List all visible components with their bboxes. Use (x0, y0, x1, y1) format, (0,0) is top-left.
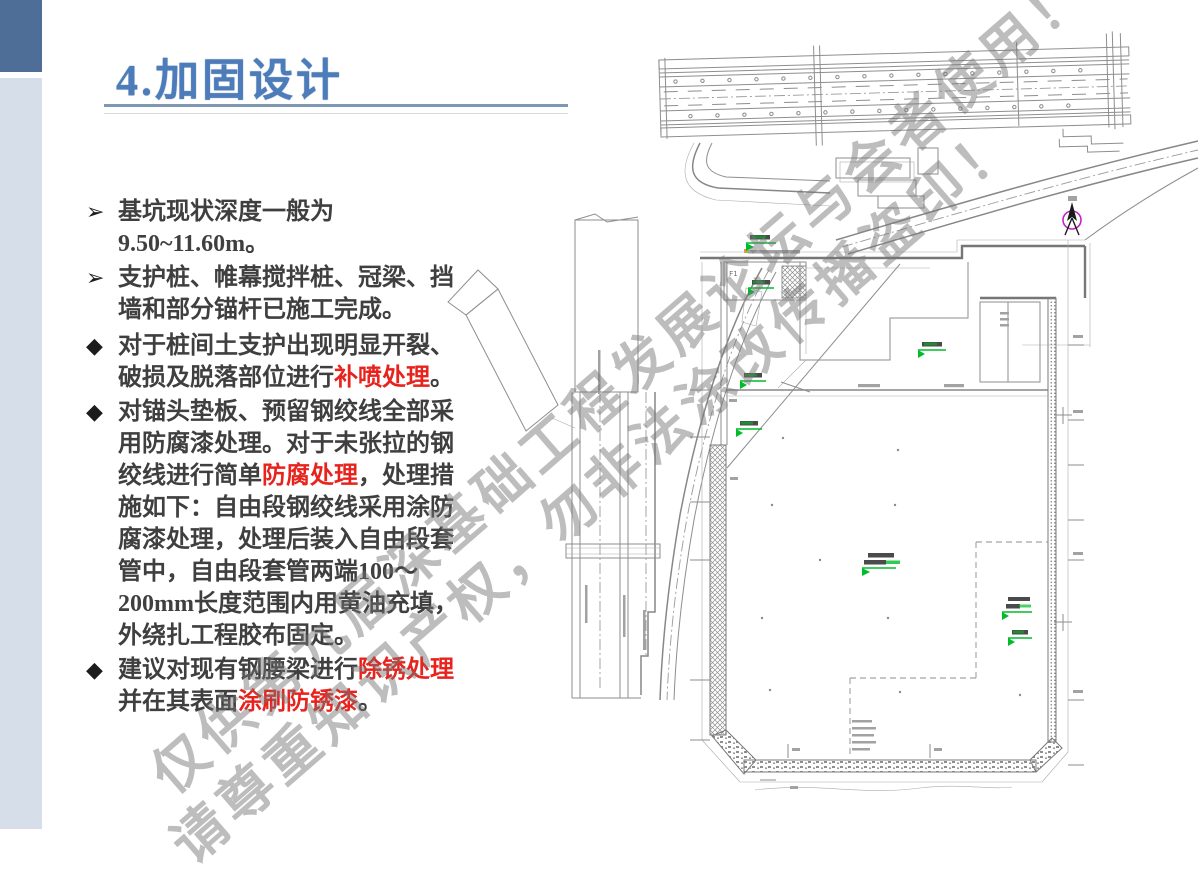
list-item-text: 并在其表面 (118, 689, 238, 715)
diamond-bullet-icon: ◆ (86, 397, 103, 429)
arrow-bullet-icon: ➢ (86, 197, 104, 229)
list-item-text: 建议对现有钢腰梁进行 (118, 657, 358, 683)
list-item: ◆ 对于桩间土支护出现明显开裂、破损及脱落部位进行补喷处理。 (86, 330, 474, 394)
list-item-text: ，处理措施如下：自由段钢绞线采用涂防腐漆处理，处理后装入自由段套管中，自由段套管… (118, 463, 458, 649)
diamond-bullet-icon: ◆ (86, 655, 103, 687)
monitoring-point (736, 421, 762, 437)
monitoring-point (746, 235, 776, 251)
monitoring-point (1008, 630, 1032, 646)
monitoring-point (740, 373, 766, 389)
measures-bullet-list: ◆ 对于桩间土支护出现明显开裂、破损及脱落部位进行补喷处理。 ◆ 对锚头垫板、预… (86, 330, 488, 720)
curved-ramp (660, 141, 1198, 700)
list-item: ◆ 建议对现有钢腰梁进行除锈处理并在其表面涂刷防锈漆。 (86, 654, 474, 718)
monitoring-point (1002, 597, 1032, 620)
highlighted-text: 涂刷防锈漆 (238, 689, 358, 715)
existing-corridor (658, 31, 1131, 164)
accent-bar-dark (0, 0, 42, 72)
zone-label: F1 (729, 270, 737, 278)
accent-bar-light (0, 78, 42, 829)
highlighted-text: 补喷处理 (334, 365, 430, 391)
list-item-text: 支护桩、帷幕搅拌桩、冠梁、挡墙和部分锚杆已施工完成。 (118, 265, 454, 323)
diagonal-ramp-block (448, 270, 575, 431)
list-item-text: 基坑现状深度一般为9.50~11.60m。 (118, 199, 334, 257)
list-item-text: 。 (358, 689, 382, 715)
excavation-pit: F1 (690, 240, 1090, 791)
monitoring-point (862, 553, 900, 576)
diamond-bullet-icon: ◆ (86, 331, 103, 363)
corridor-connector (685, 143, 938, 208)
highlighted-text: 防腐处理 (262, 463, 358, 489)
monitoring-point (918, 342, 946, 358)
arrow-bullet-icon: ➢ (86, 263, 104, 295)
site-plan-drawing: F1 (440, 30, 1200, 810)
list-item: ➢ 基坑现状深度一般为9.50~11.60m。 (86, 196, 474, 260)
north-arrow-icon (1063, 196, 1081, 235)
monitoring-points (736, 235, 1032, 646)
list-item: ◆ 对锚头垫板、预留钢绞线全部采用防腐漆处理。对于未张拉的钢绞线进行简单防腐处理… (86, 396, 474, 652)
left-road (566, 214, 660, 698)
list-item: ➢ 支护桩、帷幕搅拌桩、冠梁、挡墙和部分锚杆已施工完成。 (86, 262, 474, 326)
presentation-slide: { "slide": { "title": "4.加固设计", "colors"… (0, 0, 1200, 829)
status-bullet-list: ➢ 基坑现状深度一般为9.50~11.60m。 ➢ 支护桩、帷幕搅拌桩、冠梁、挡… (86, 196, 488, 328)
